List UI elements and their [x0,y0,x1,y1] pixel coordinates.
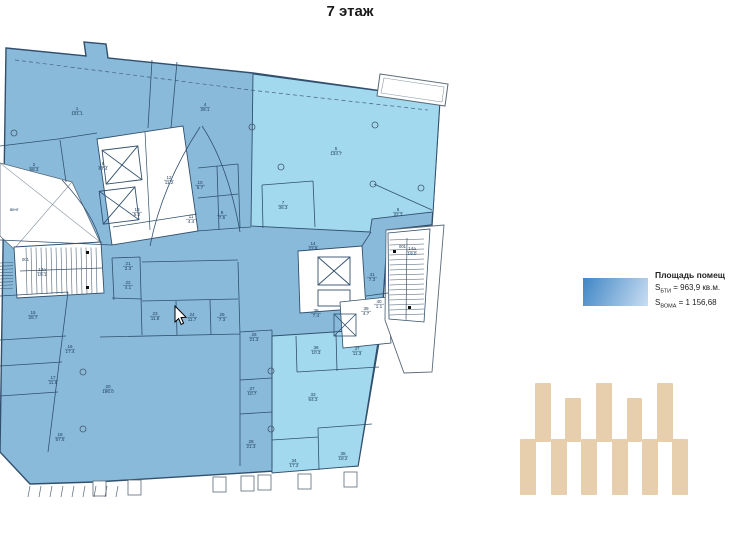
cyan-zone-bottom [272,329,380,473]
legend-area-bti: SБТИ = 963,9 кв.м. [655,283,734,295]
svg-text:001: 001 [22,257,30,262]
decorative-bars [520,383,688,495]
svg-text:001: 001 [399,244,407,249]
elevator-core [97,126,198,245]
svg-text:вент: вент [10,207,19,212]
floorplan-viewer: 7 этаж [0,0,734,535]
floor-plan[interactable]: 1101.1258.3867.4426.15134.7736.3632.7121… [0,0,734,535]
legend-swatch [583,278,648,306]
legend-title: Площадь помещ [655,270,734,280]
legend-area-boma: SВОМА = 1 156,68 [655,298,734,310]
